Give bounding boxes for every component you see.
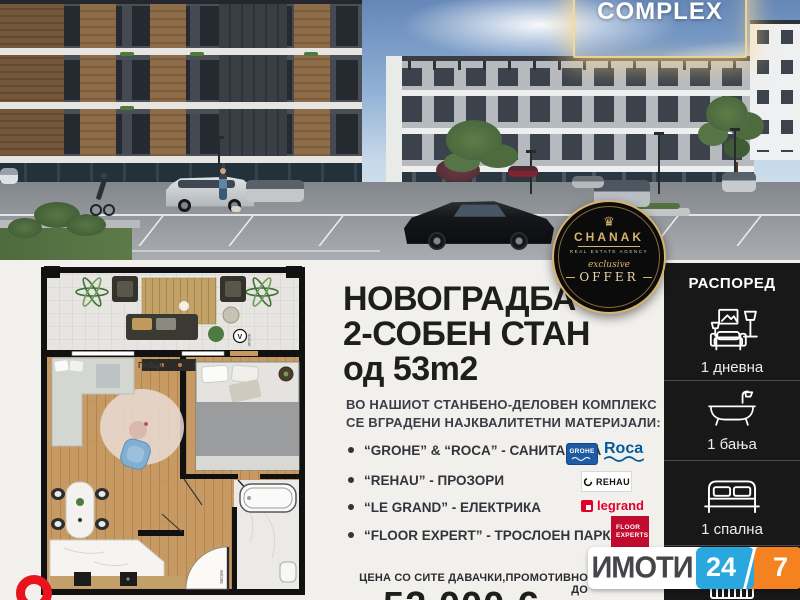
floorplan-area-label: П=0цн [138,361,163,370]
price-value: 52.000 € [383,585,539,600]
terrace-door-opening [230,351,258,356]
intro-text: ВО НАШИОТ СТАНБЕНО-ДЕЛОВЕН КОМПЛЕКС СЕ В… [346,396,661,432]
layout-item-label: 1 дневна [701,359,763,376]
apartment-floorplan: 90/205 V 90/240 П=0цн [34,262,312,600]
material-item-parquet: “FLOOR EXPERT” - ТРОСЛОЕН ПАРКЕТ [348,528,628,543]
material-item-electric: “LE GRAND” - ЕЛЕКТРИКА [348,500,541,515]
chanak-agency-badge: ♛ CHANAK REAL ESTATE AGENCY exclusive OF… [552,200,666,314]
silver-sedan [246,180,304,202]
layout-panel-title: РАСПОРЕД [664,263,800,304]
headline-line3: од 53m2 [343,352,590,387]
layout-item-label: 1 бања [707,436,757,453]
legrand-icon [581,500,593,512]
real-estate-flyer: COMPLEX ♛ CHANAK REAL ESTATE AGENCY excl… [0,0,800,600]
material-item-windows: “REHAU” - ПРОЗОРИ [348,473,504,488]
white-car [0,168,18,184]
pedestrian [219,174,227,200]
offer-label: OFFER [566,270,651,284]
floor-experts-logo: FLOOR EXPERTS [611,516,649,547]
divider [578,246,640,247]
legrand-logo: legrand [581,498,644,513]
tree [446,120,502,160]
vent-marker-label: V [238,334,243,341]
window [182,352,224,356]
layout-item-bath: 1 бања [664,381,800,460]
bed-blanket [196,402,299,460]
layout-item-label: 1 спална [701,521,763,538]
layout-item-bedroom: 1 спална [664,461,800,545]
terrace-decor [179,301,189,311]
balcony-plant [120,106,134,110]
kitchen-wall-stub [138,530,184,536]
toilet [280,562,296,582]
stove [74,572,91,586]
sofa-throw [96,364,120,388]
terrace-table [223,307,239,323]
balcony-plant [190,52,204,56]
bed-icon [701,468,763,516]
balcony-plant [304,52,318,56]
street-lamp [658,132,660,194]
terrace-pot-plant [208,326,224,342]
bathtub-icon [702,387,762,431]
black-sedan [404,196,554,248]
dog [231,206,241,212]
complex-badge-label: COMPLEX [575,0,745,26]
layout-item-living: 1 дневна [664,304,800,380]
roca-logo: Roca [604,440,644,462]
silver-car [722,172,756,192]
cyclist [90,176,118,216]
silver-suv [166,174,254,210]
agency-tagline: REAL ESTATE AGENCY [570,249,648,254]
rehau-icon [583,477,593,487]
material-item-sanitary: “GROHE” & “ROCA” - САНИТАРИЈА [348,443,601,458]
balcony-plant [120,52,134,56]
bathroom-wall [232,507,237,589]
building-far-right [750,20,800,160]
red-car [508,166,538,177]
bush [8,218,42,238]
silver-car [572,176,604,188]
grohe-logo: GROHE [566,443,598,465]
imoti-247-logo: ИМОТИ 24 7 [588,547,800,589]
imoti-wordmark: ИМОТИ [588,551,696,586]
headline-line1: НОВОГРАДБА [343,282,590,317]
agency-name: CHANAK [574,230,644,244]
rehau-logo: REHAU [581,471,632,492]
crown-icon: ♛ [603,215,615,228]
exclusive-script: exclusive [588,260,630,270]
bush [66,214,106,236]
kitchen-cabinets [50,576,184,588]
window-dimension: 90/240 [247,334,252,347]
complex-render-photo: COMPLEX [0,0,800,260]
complex-glow-badge: COMPLEX [573,0,747,58]
headline-line2: 2-СОБЕН СТАН [343,317,590,352]
bush [436,158,480,182]
living-room-icon [702,308,762,354]
tree [706,96,748,132]
door-dimension: 90/205 [219,570,224,584]
dining-table [66,482,94,538]
window [72,352,134,356]
headline: НОВОГРАДБА 2-СОБЕН СТАН од 53m2 [343,282,590,387]
imoti-247-mark: 24 7 [696,547,800,589]
